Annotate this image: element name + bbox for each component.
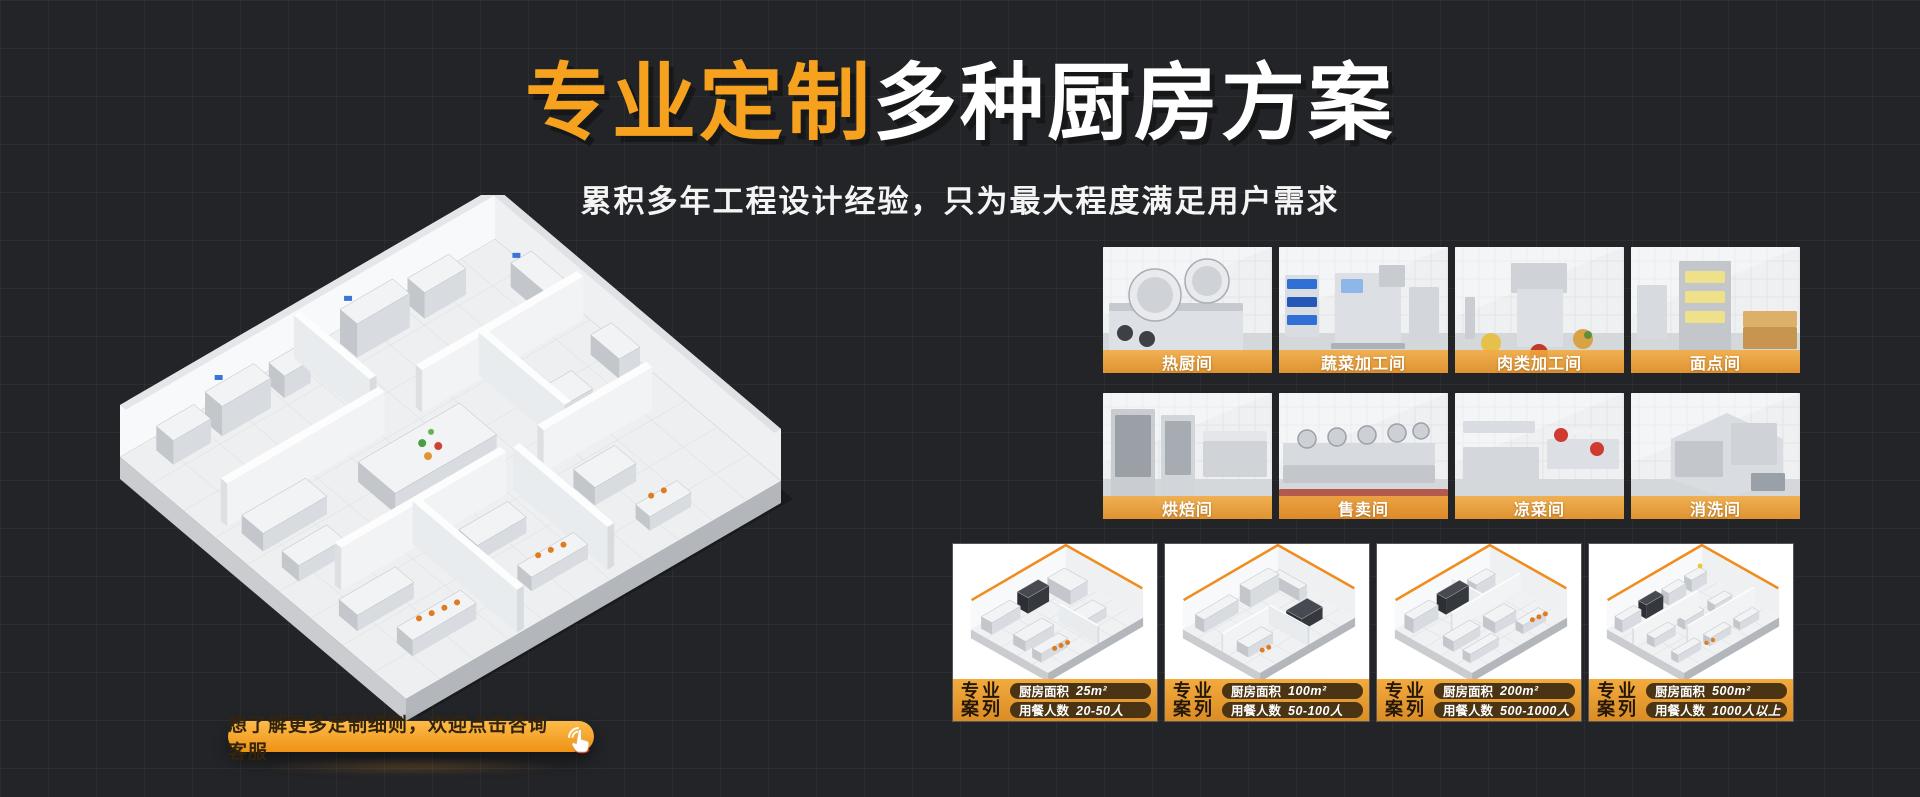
- room-label: 肉类加工间: [1497, 350, 1582, 374]
- case-card-500[interactable]: 专业案列 厨房面积500m² 用餐人数1000人以上: [1588, 543, 1794, 722]
- room-card-dishwashing[interactable]: 消洗间: [1631, 393, 1800, 519]
- case-area-pill: 厨房面积100m²: [1222, 683, 1363, 699]
- room-grid: 热厨间 蔬菜加工间 肉类加工间 面点间 烘焙间 售卖间 凉菜间 消洗间: [1103, 247, 1803, 519]
- case-floorplan-illustration: [1377, 544, 1581, 680]
- case-specs: 厨房面积200m² 用餐人数500-1000人: [1434, 683, 1575, 718]
- case-tag: 专业案列: [961, 682, 1003, 719]
- room-label: 热厨间: [1162, 350, 1213, 374]
- room-label-band: 蔬菜加工间: [1279, 350, 1448, 373]
- case-info-band: 专业案列 厨房面积25m² 用餐人数20-50人: [953, 679, 1157, 721]
- page-title: 专业定制多种厨房方案: [0, 56, 1920, 150]
- case-info-band: 专业案列 厨房面积100m² 用餐人数50-100人: [1165, 679, 1369, 721]
- case-diners-pill: 用餐人数500-1000人: [1434, 702, 1575, 718]
- case-info-band: 专业案列 厨房面积200m² 用餐人数500-1000人: [1377, 679, 1581, 721]
- room-label: 面点间: [1690, 350, 1741, 374]
- case-diners-pill: 用餐人数50-100人: [1222, 702, 1363, 718]
- room-label: 售卖间: [1338, 496, 1389, 520]
- case-card-25[interactable]: 专业案列 厨房面积25m² 用餐人数20-50人: [952, 543, 1158, 722]
- case-specs: 厨房面积500m² 用餐人数1000人以上: [1646, 683, 1787, 718]
- case-tag: 专业案列: [1385, 682, 1427, 719]
- room-label: 凉菜间: [1514, 496, 1565, 520]
- case-card-100[interactable]: 专业案列 厨房面积100m² 用餐人数50-100人: [1164, 543, 1370, 722]
- room-card-serving[interactable]: 售卖间: [1279, 393, 1448, 519]
- case-floorplan-illustration: [1165, 544, 1369, 680]
- page-title-highlight: 专业定制: [525, 56, 873, 150]
- hand-click-icon: [562, 724, 594, 754]
- room-card-cold-dish[interactable]: 凉菜间: [1455, 393, 1624, 519]
- case-area-pill: 厨房面积500m²: [1646, 683, 1787, 699]
- cta-label: 想了解更多定制细则，欢迎点击咨询客服: [228, 710, 558, 764]
- room-label-band: 肉类加工间: [1455, 350, 1624, 373]
- consult-cta-button[interactable]: 想了解更多定制细则，欢迎点击咨询客服: [228, 721, 594, 752]
- room-label-band: 面点间: [1631, 350, 1800, 373]
- room-card-vegetable[interactable]: 蔬菜加工间: [1279, 247, 1448, 373]
- room-label: 蔬菜加工间: [1321, 350, 1406, 374]
- case-area-pill: 厨房面积200m²: [1434, 683, 1575, 699]
- room-label-band: 凉菜间: [1455, 496, 1624, 519]
- room-label: 消洗间: [1690, 496, 1741, 520]
- case-specs: 厨房面积25m² 用餐人数20-50人: [1010, 683, 1151, 718]
- room-label: 烘焙间: [1162, 496, 1213, 520]
- room-label-band: 热厨间: [1103, 350, 1272, 373]
- case-floorplan-illustration: [953, 544, 1157, 680]
- case-area-pill: 厨房面积25m²: [1010, 683, 1151, 699]
- kitchen-floorplan-illustration: [95, 195, 805, 740]
- room-card-baking[interactable]: 烘焙间: [1103, 393, 1272, 519]
- room-card-hot-kitchen[interactable]: 热厨间: [1103, 247, 1272, 373]
- room-card-meat[interactable]: 肉类加工间: [1455, 247, 1624, 373]
- room-card-pastry[interactable]: 面点间: [1631, 247, 1800, 373]
- promo-banner: 专业定制多种厨房方案 累积多年工程设计经验，只为最大程度满足用户需求 热厨间 蔬…: [0, 0, 1920, 797]
- case-specs: 厨房面积100m² 用餐人数50-100人: [1222, 683, 1363, 718]
- case-diners-pill: 用餐人数1000人以上: [1646, 702, 1787, 718]
- case-card-200[interactable]: 专业案列 厨房面积200m² 用餐人数500-1000人: [1376, 543, 1582, 722]
- case-tag: 专业案列: [1597, 682, 1639, 719]
- page-title-rest: 多种厨房方案: [873, 56, 1395, 150]
- room-label-band: 消洗间: [1631, 496, 1800, 519]
- room-label-band: 售卖间: [1279, 496, 1448, 519]
- case-info-band: 专业案列 厨房面积500m² 用餐人数1000人以上: [1589, 679, 1793, 721]
- case-floorplan-illustration: [1589, 544, 1793, 680]
- room-label-band: 烘焙间: [1103, 496, 1272, 519]
- case-tag: 专业案列: [1173, 682, 1215, 719]
- case-row: 专业案列 厨房面积25m² 用餐人数20-50人 专业案列 厨房面积100m² …: [952, 543, 1802, 722]
- case-diners-pill: 用餐人数20-50人: [1010, 702, 1151, 718]
